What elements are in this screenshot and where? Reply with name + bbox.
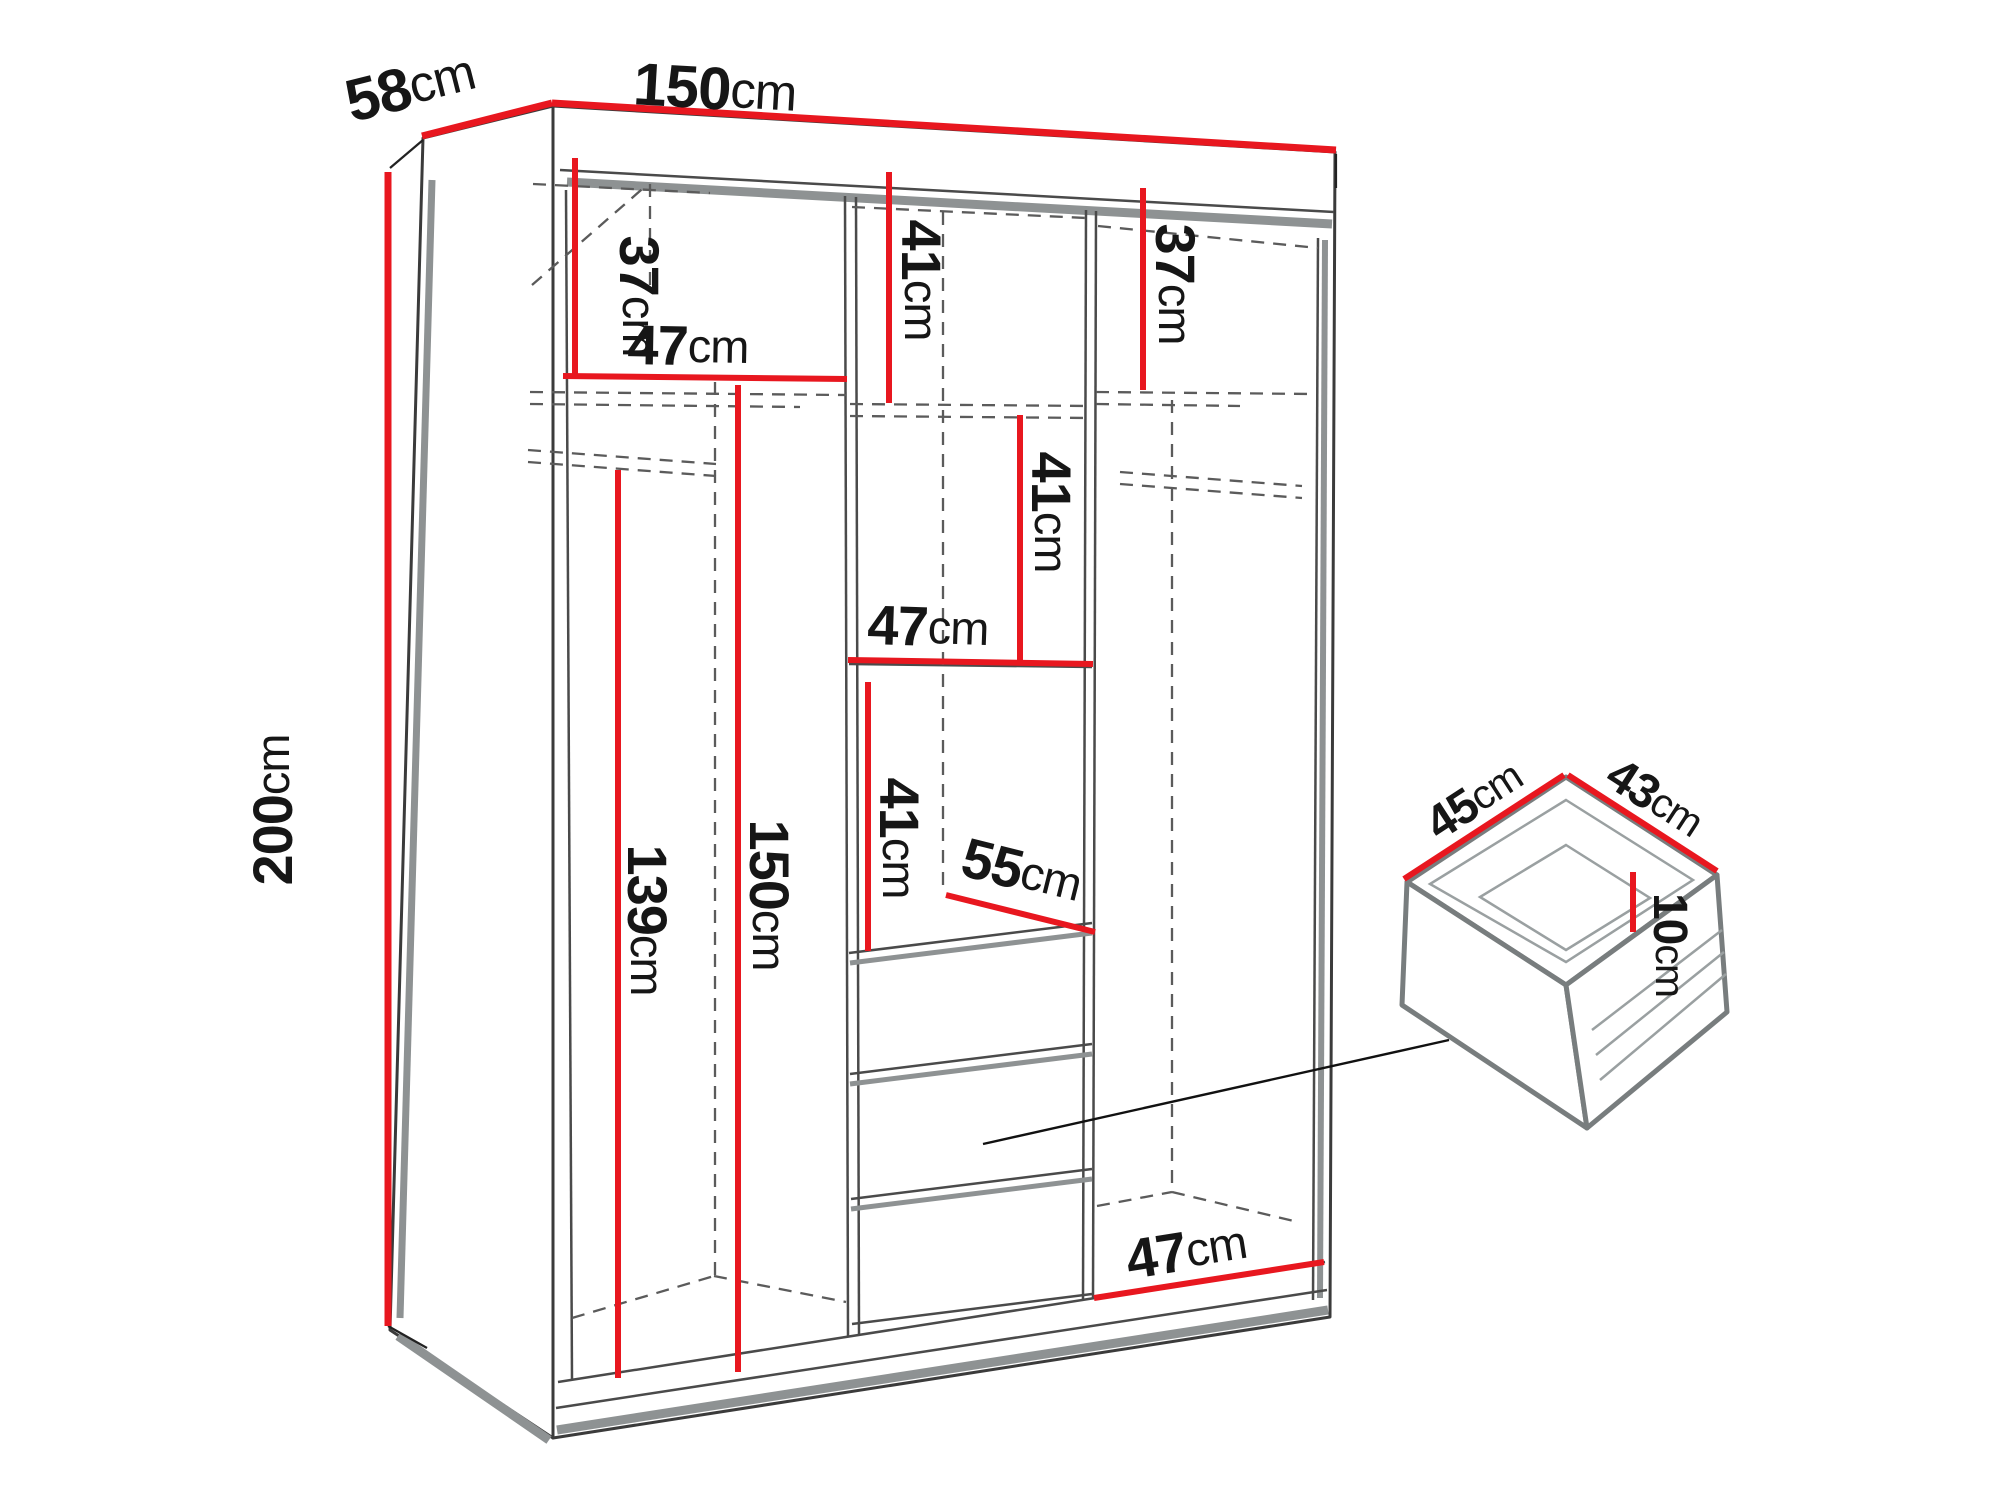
furniture-dimension-diagram: 150cm 58cm 200cm 37cm 47cm 41cm 37cm 41c…	[0, 0, 2000, 1500]
dim-height: 200cm	[241, 172, 389, 1326]
dim-label-middle-lower-shelf-spacing: 41cm	[869, 778, 932, 899]
dim-line-middle-shelf-width	[848, 660, 1093, 664]
dim-label-left-interior-height: 150cm	[739, 819, 802, 970]
dim-label-right-top-shelf-height: 37cm	[1145, 224, 1208, 345]
diagram-canvas: 150cm 58cm 200cm 37cm 47cm 41cm 37cm 41c…	[0, 0, 2000, 1500]
dim-label-middle-top-shelf-height: 41cm	[891, 220, 954, 341]
dim-line-left-shelf-width	[563, 376, 847, 379]
dim-label-width: 150cm	[632, 50, 799, 127]
dim-label-drawer-height: 10cm	[1644, 893, 1697, 997]
dim-label-left-shelf-width: 47cm	[627, 312, 749, 377]
dim-label-height: 200cm	[241, 734, 304, 885]
dim-label-depth: 58cm	[338, 37, 481, 134]
dim-label-middle-shelf-width: 47cm	[866, 592, 989, 659]
dim-label-middle-upper-shelf-spacing: 41cm	[1021, 452, 1084, 573]
dim-label-left-hanging-height: 139cm	[617, 844, 680, 995]
